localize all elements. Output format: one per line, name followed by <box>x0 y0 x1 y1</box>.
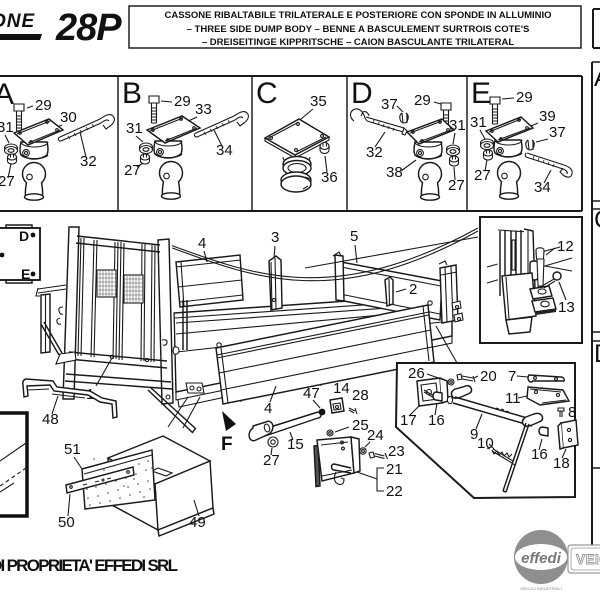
svg-text:32: 32 <box>80 153 97 170</box>
svg-text:22: 22 <box>386 483 403 500</box>
svg-text:5: 5 <box>350 228 358 245</box>
svg-text:F: F <box>221 434 233 455</box>
svg-text:34: 34 <box>216 142 233 159</box>
svg-text:32: 32 <box>366 144 383 161</box>
svg-text:12: 12 <box>557 238 574 255</box>
svg-text:27: 27 <box>0 173 15 190</box>
svg-text:31: 31 <box>449 117 466 134</box>
svg-text:20: 20 <box>480 368 497 385</box>
svg-text:D: D <box>19 228 29 244</box>
svg-text:37: 37 <box>381 96 398 113</box>
svg-text:C: C <box>594 206 600 234</box>
svg-text:D: D <box>594 340 600 368</box>
svg-text:27: 27 <box>474 167 491 184</box>
svg-text:ONE: ONE <box>0 11 36 32</box>
svg-text:10: 10 <box>477 435 494 452</box>
svg-text:16: 16 <box>428 412 445 429</box>
svg-text:24: 24 <box>367 427 384 444</box>
svg-text:47: 47 <box>303 385 320 402</box>
svg-text:34: 34 <box>534 179 551 196</box>
svg-text:35: 35 <box>310 93 327 110</box>
svg-text:27: 27 <box>448 177 465 194</box>
svg-text:effedi: effedi <box>521 550 562 567</box>
svg-text:8: 8 <box>568 404 576 421</box>
svg-text:E: E <box>21 266 30 282</box>
svg-text:7: 7 <box>508 368 516 385</box>
svg-text:30: 30 <box>60 109 77 126</box>
svg-text:21: 21 <box>386 461 403 478</box>
svg-text:– DREISEITINGE KIPPRITSCHE – C: – DREISEITINGE KIPPRITSCHE – CAION BASCU… <box>202 37 514 48</box>
svg-text:VEIC: VEIC <box>576 552 600 567</box>
svg-text:33: 33 <box>195 101 212 118</box>
svg-text:3: 3 <box>271 229 279 246</box>
svg-text:DI PROPRIETA' EFFEDI SRL: DI PROPRIETA' EFFEDI SRL <box>0 556 178 575</box>
svg-text:48: 48 <box>42 411 59 428</box>
svg-text:17: 17 <box>400 412 417 429</box>
svg-text:38: 38 <box>386 164 403 181</box>
svg-text:28: 28 <box>352 387 369 404</box>
svg-text:39: 39 <box>539 108 556 125</box>
svg-text:14: 14 <box>333 380 350 397</box>
svg-text:4: 4 <box>198 235 206 252</box>
svg-text:– THREE SIDE DUMP BODY – B: – THREE SIDE DUMP BODY – BENNE A BASCULE… <box>187 24 530 35</box>
svg-text:31: 31 <box>0 119 14 136</box>
svg-text:29: 29 <box>516 89 533 106</box>
svg-text:C: C <box>256 77 278 110</box>
svg-text:D: D <box>351 77 373 110</box>
svg-text:23: 23 <box>388 443 405 460</box>
svg-text:2: 2 <box>409 281 417 298</box>
svg-text:29: 29 <box>174 93 191 110</box>
svg-text:4: 4 <box>264 400 272 417</box>
svg-text:37: 37 <box>549 124 566 141</box>
svg-text:26: 26 <box>408 365 425 382</box>
svg-text:A: A <box>0 78 14 111</box>
svg-text:31: 31 <box>470 114 487 131</box>
svg-text:18: 18 <box>553 455 570 472</box>
svg-text:28P: 28P <box>55 7 122 49</box>
svg-text:50: 50 <box>58 514 75 531</box>
svg-text:31: 31 <box>126 120 143 137</box>
svg-text:A: A <box>594 64 600 92</box>
svg-text:51: 51 <box>64 441 81 458</box>
svg-text:36: 36 <box>321 169 338 186</box>
svg-text:15: 15 <box>287 436 304 453</box>
svg-text:29: 29 <box>35 97 52 114</box>
svg-text:VEICOLI INDUSTRIALI: VEICOLI INDUSTRIALI <box>520 586 562 591</box>
svg-text:E: E <box>471 77 491 110</box>
svg-text:CASSONE RIBALTABILE TRILATERAL: CASSONE RIBALTABILE TRILATERALE E POSTER… <box>164 10 551 21</box>
svg-text:29: 29 <box>414 92 431 109</box>
svg-text:B: B <box>122 77 142 110</box>
svg-text:49: 49 <box>189 514 206 531</box>
svg-text:27: 27 <box>124 162 141 179</box>
svg-text:13: 13 <box>558 299 575 316</box>
